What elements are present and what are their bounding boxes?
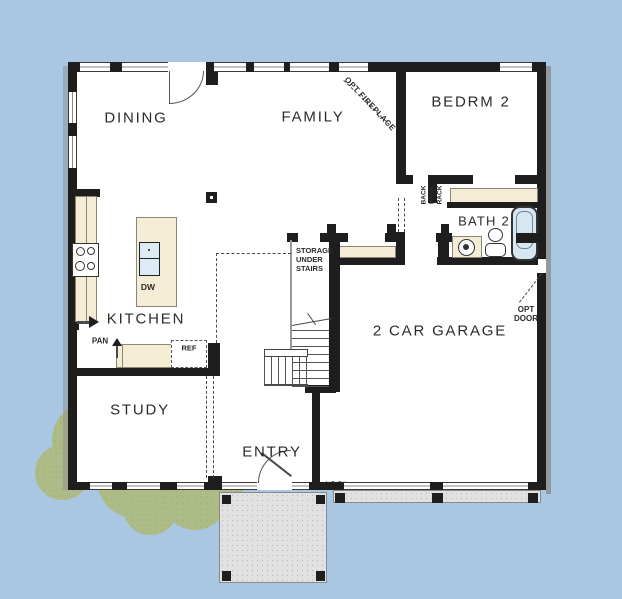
porch-post: [222, 495, 231, 504]
floor-plan: DINING FAMILY BEDRM 2 BATH 2 KITCHEN STU…: [0, 0, 622, 599]
window: [214, 62, 246, 72]
toilet-bowl: [488, 228, 503, 242]
window: [90, 482, 112, 490]
wall-segment: [396, 62, 406, 183]
toilet-tank: [485, 243, 506, 257]
garage-door: [443, 482, 528, 490]
dishwasher-knob: [148, 249, 150, 251]
wall-segment: [436, 233, 452, 242]
ceiling-break: [216, 253, 291, 254]
sidelight-window: [292, 482, 309, 490]
cooktop-burner: [75, 261, 85, 271]
opt-door-label-line1: OPT: [514, 305, 538, 314]
room-label-dining: DINING: [104, 110, 167, 127]
window: [500, 62, 532, 72]
storage-label: STORAGE UNDER STAIRS: [296, 246, 333, 273]
window: [177, 482, 204, 490]
room-label-study: STUDY: [110, 402, 170, 419]
storage-label-line1: STORAGE: [296, 246, 333, 255]
refrigerator-label: REF: [182, 344, 197, 353]
window: [68, 92, 77, 123]
window: [80, 62, 110, 72]
cased-opening: [398, 198, 399, 232]
apron-post: [528, 493, 538, 503]
opt-door-opening: [537, 259, 546, 273]
backpack-label-rack: RACK: [437, 186, 444, 205]
wall-segment: [515, 175, 538, 184]
wall-stub: [441, 224, 449, 233]
dishwasher-label: DW: [141, 282, 155, 292]
storage-label-line3: STAIRS: [296, 264, 333, 273]
wall-segment: [396, 175, 413, 184]
garage-door: [344, 482, 430, 490]
apron-post: [335, 493, 345, 503]
window: [339, 62, 368, 72]
porch-post: [316, 571, 325, 581]
column-post-dot: [210, 196, 213, 199]
stair-balusters: [264, 357, 308, 384]
backpack-label-back: BACK: [421, 186, 428, 205]
pantry-arrow-head: [112, 338, 122, 346]
room-label-entry: ENTRY: [242, 444, 302, 461]
sidelight-window: [222, 482, 257, 490]
storage-label-line2: UNDER: [296, 255, 333, 264]
wall-segment: [208, 343, 220, 370]
cooktop-burner: [87, 247, 95, 255]
stair-bottom-line: [264, 384, 308, 386]
pantry-arrow: [116, 345, 118, 358]
pantry-label: PAN: [92, 337, 108, 346]
front-door-opening: [257, 482, 292, 490]
wall-stub: [208, 476, 222, 486]
cased-opening: [206, 376, 207, 478]
room-label-garage: 2 CAR GARAGE: [373, 323, 507, 340]
window: [122, 62, 168, 72]
window: [254, 62, 284, 72]
opt-door-label-line2: DOOR: [514, 314, 538, 323]
backpack-label-pack: PACK: [429, 186, 436, 204]
cased-opening: [404, 198, 405, 232]
room-label-family: FAMILY: [281, 109, 344, 126]
ceiling-break: [216, 253, 217, 343]
hall-arrow-head: [89, 316, 99, 328]
cooktop-burner: [87, 262, 95, 270]
wall-segment: [312, 392, 320, 482]
dishwasher-bottom: [139, 258, 160, 276]
wall-segment: [68, 368, 220, 376]
front-porch: [219, 492, 327, 583]
porch-post: [222, 571, 231, 581]
room-label-kitchen: KITCHEN: [107, 311, 185, 328]
window: [290, 62, 329, 72]
window: [68, 136, 77, 168]
room-label-bedrm2: BEDRM 2: [431, 94, 510, 111]
wall-shadow: [546, 66, 551, 494]
porch-post: [316, 495, 325, 504]
backpack-rack-shelf: [450, 188, 538, 203]
cooktop-burner: [76, 247, 85, 256]
room-label-bath2: BATH 2: [458, 214, 510, 229]
wall-segment: [516, 233, 545, 243]
wall-stub: [387, 224, 396, 233]
cased-opening: [213, 376, 214, 478]
apron-post: [432, 493, 443, 503]
wall-stub: [327, 224, 336, 233]
pantry-line: [122, 345, 123, 367]
bath-sink-drain: [463, 244, 469, 250]
window: [127, 482, 160, 490]
mud-bench: [335, 246, 396, 258]
opt-door-label: OPT DOOR: [514, 305, 538, 323]
wall-stub: [287, 233, 298, 242]
wall-stub: [206, 72, 218, 85]
wall-segment: [333, 258, 404, 265]
stair-rail: [264, 349, 308, 357]
